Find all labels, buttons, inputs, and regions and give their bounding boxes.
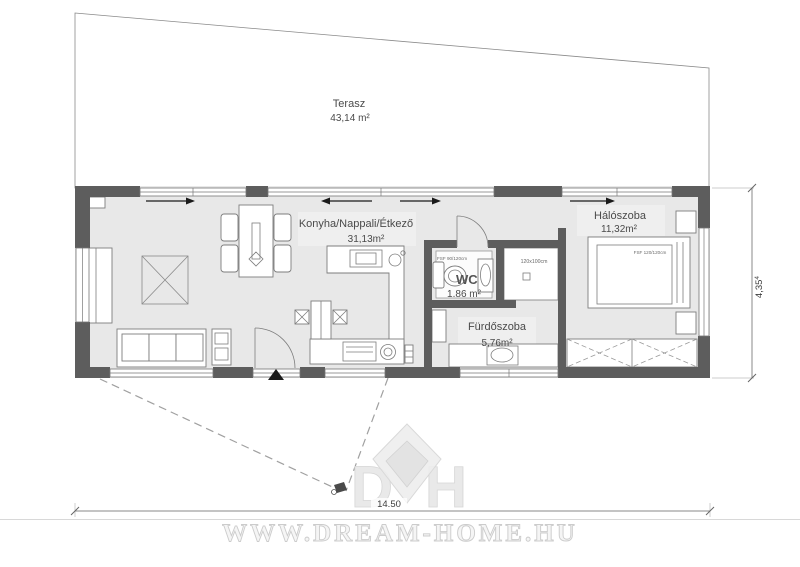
bathroom-cabinet <box>432 310 446 342</box>
terrace-area-label: 43,14 m² <box>330 113 370 124</box>
wardrobe <box>567 339 697 367</box>
tv-cabinet <box>212 329 231 365</box>
wall-segment <box>494 186 562 197</box>
sofa <box>117 329 206 367</box>
bedroom-name-label: Hálószoba <box>594 210 647 222</box>
terrace-name-label: Terasz <box>333 98 365 110</box>
floor-plan-drawing: Terasz 43,14 m² <box>0 0 800 567</box>
chair <box>274 214 291 241</box>
wc-washbasin <box>478 259 493 292</box>
wall-segment <box>558 367 710 378</box>
living-name-label: Konyha/Nappali/Étkező <box>299 217 413 230</box>
wall-segment <box>385 367 460 378</box>
bedroom-area-label: 11,32m² <box>601 224 638 235</box>
dining-table <box>221 205 291 277</box>
shower-room <box>504 248 558 300</box>
wc-area-label: 1.86 m² <box>447 289 482 300</box>
bar-stool <box>333 310 347 324</box>
partition-wall <box>424 300 504 308</box>
bed-size-label: FSF 120/120cm <box>634 250 667 255</box>
partition-wall <box>496 248 504 308</box>
wc-name-label: WC <box>456 272 478 287</box>
partition-wall <box>558 228 566 378</box>
tall-cabinet <box>311 301 331 339</box>
wall-segment <box>698 336 710 378</box>
chair <box>221 245 238 272</box>
wc-window-size-label: FSF 90/120cm <box>437 256 467 261</box>
bathroom-area-label: 5,76m² <box>481 338 513 349</box>
wall-segment <box>75 186 90 248</box>
window-bench <box>88 248 112 323</box>
partition-wall <box>488 240 562 248</box>
sofa-cushion <box>176 334 203 361</box>
wall-segment <box>300 367 325 378</box>
wall-segment <box>75 322 90 378</box>
nightstand <box>676 211 696 233</box>
bathroom-name-label: Fürdőszoba <box>468 321 527 333</box>
chair <box>274 245 291 272</box>
living-area-label: 31,13m² <box>348 234 385 245</box>
nightstand <box>676 312 696 334</box>
wall-segment <box>213 367 253 378</box>
partition-wall <box>424 240 457 248</box>
dimension-width-label: 14.50 <box>377 499 401 510</box>
shower-tray <box>504 248 558 300</box>
wall-segment <box>246 186 268 197</box>
radiator <box>405 345 413 363</box>
bar-stool <box>295 310 309 324</box>
wall-segment <box>698 186 710 228</box>
shower-size-label: 120x100cm <box>521 259 548 265</box>
partition-wall <box>504 300 516 308</box>
sofa-cushion <box>122 334 149 361</box>
double-bed <box>588 237 690 308</box>
watermark-text: WWW.DREAM-HOME.HU <box>222 520 578 547</box>
floor-plan-canvas: Terasz 43,14 m² <box>0 0 800 567</box>
kitchen-island-counter <box>310 339 404 364</box>
chair <box>221 214 238 241</box>
corner-window <box>89 197 105 208</box>
sofa-cushion <box>149 334 176 361</box>
